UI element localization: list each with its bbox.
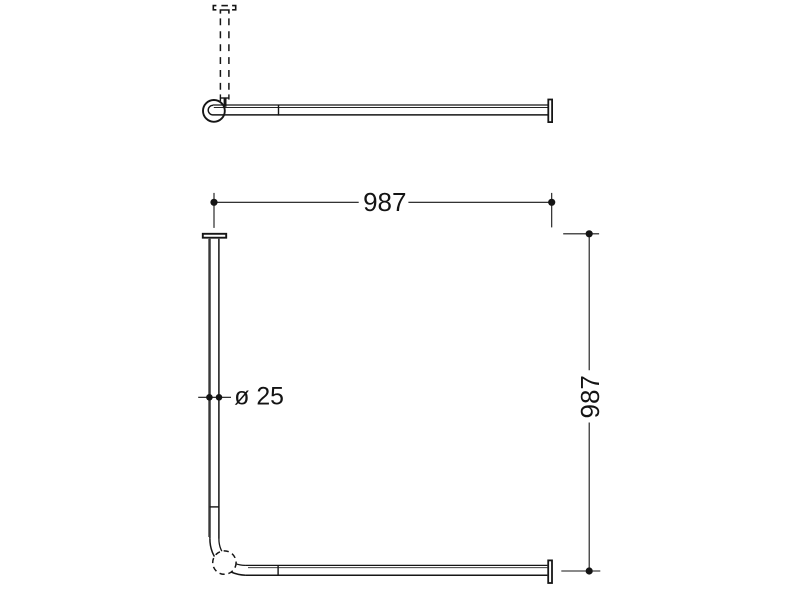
svg-text:987: 987 — [363, 187, 406, 217]
svg-text:ø 25: ø 25 — [234, 384, 284, 411]
svg-text:987: 987 — [575, 375, 605, 418]
